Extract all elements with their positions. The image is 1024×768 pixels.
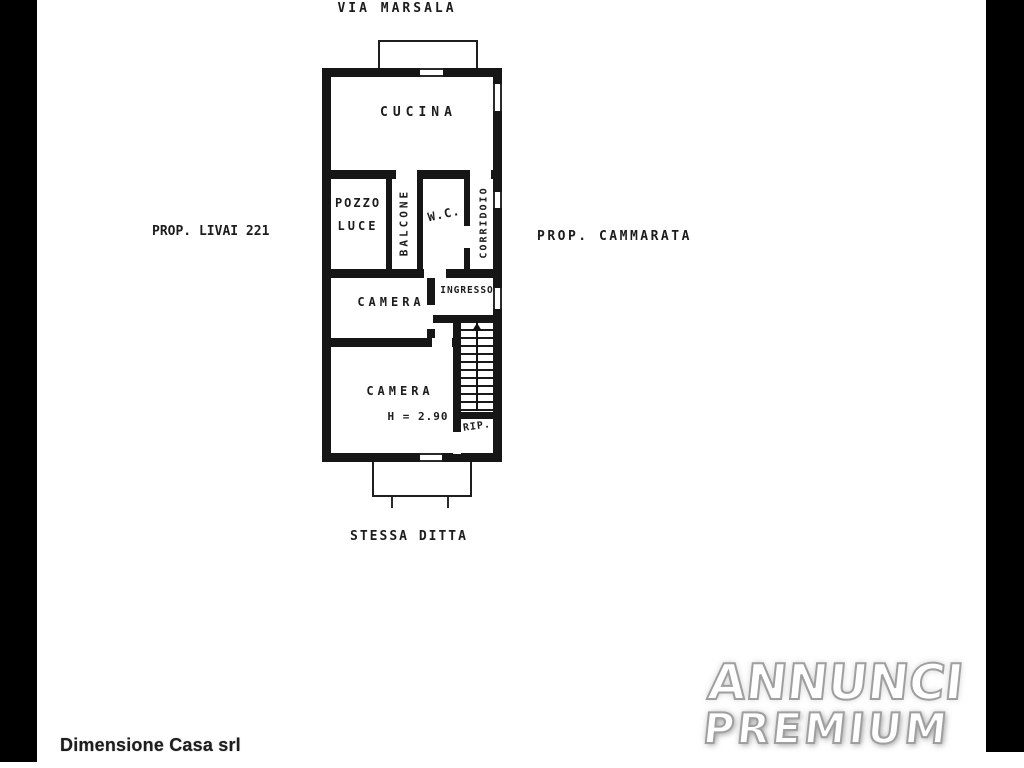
window-opening [493,84,502,111]
stairs-direction-arrow-icon [472,323,482,331]
neighbor-bottom-label: STESSA DITTA [350,529,468,544]
wall-pozzo-balcone [386,179,392,269]
wall-balcone-wc [417,179,423,269]
agency-name: Dimensione Casa srl [60,735,241,756]
room-label-camera-1: CAMERA [353,295,429,309]
balcony-tick [447,497,449,508]
room-label-pozzo-luce-1: POZZO [333,196,383,210]
wall-band2-bottom [322,269,502,278]
outer-wall-top [322,68,502,77]
window-opening [493,192,502,208]
wall-rip-top [453,412,502,419]
outer-wall-left [322,68,331,462]
stairs-midline [476,321,478,411]
street-label: VIA MARSALA [336,1,458,16]
door-opening-rip [453,432,461,454]
watermark-line1: ANNUNCI [706,658,955,708]
neighbor-right-label: PROP. CAMMARATA [537,229,697,244]
door-opening-ingresso [424,269,446,278]
room-label-balcone: BALCONE [398,178,411,268]
window-opening [420,68,443,77]
door-opening-camera2 [432,338,452,347]
neighbor-left-label: PROP. LIVAI 221 [152,224,272,239]
floor-plan: VIA MARSALA CUCINA POZZO LUCE BALCONE W.… [0,0,1024,768]
ceiling-height-note: H = 2.90 [380,410,456,423]
room-label-cucina: CUCINA [380,105,456,120]
balcony-tick [391,497,393,508]
watermark-line2: PREMIUM [701,708,949,750]
room-label-wc: W.C. [423,203,465,225]
room-label-corridoio: CORRIDOIO [479,178,490,268]
room-label-ingresso: INGRESSO [436,285,499,296]
room-label-pozzo-luce-2: LUCE [335,219,381,233]
door-opening-wc [464,226,470,248]
window-opening [420,453,442,462]
annunci-premium-watermark: ANNUNCI PREMIUM [701,658,955,750]
balcony-top [378,40,478,69]
outer-wall-right [493,68,502,462]
outer-wall-bottom [322,453,502,462]
wall-wc-corridoio [464,179,470,269]
room-label-camera-2: CAMERA [362,384,438,398]
room-label-rip: RIP. [458,419,495,435]
balcony-bottom [372,462,472,497]
